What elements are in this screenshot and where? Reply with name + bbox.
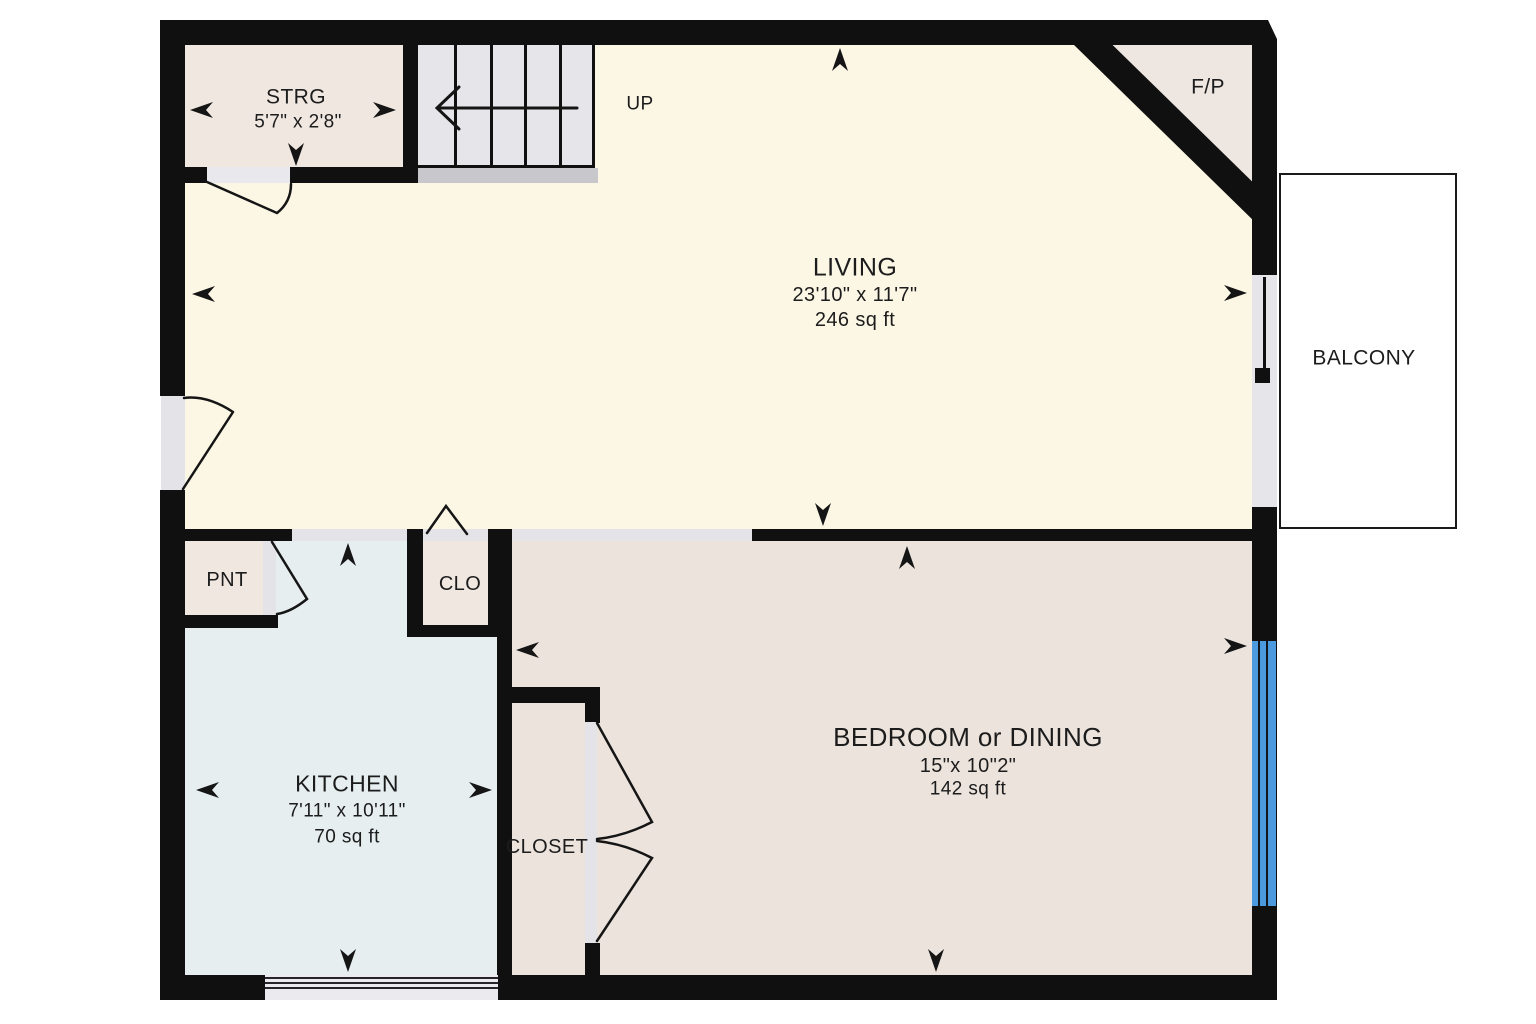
kitchen-area: 70 sq ft [314, 828, 380, 847]
window-mullion [1266, 641, 1268, 906]
closet-door-opening [585, 722, 597, 943]
wall-left [160, 490, 185, 1000]
bedroom-window [1252, 641, 1276, 906]
storage-door-opening [207, 167, 290, 183]
wall-top [160, 20, 1277, 45]
window-mullion [1258, 641, 1260, 906]
wall-left [160, 20, 185, 396]
stair-tread-divider [559, 45, 562, 165]
kitchen-label: KITCHEN [295, 773, 399, 796]
living-divider-wall [185, 529, 292, 541]
pantry-door-opening [263, 541, 276, 615]
fireplace-label: F/P [1191, 77, 1225, 98]
bedroom-label: BEDROOM or DINING [833, 724, 1103, 750]
balcony-label: BALCONY [1312, 348, 1415, 369]
kitchen-window [265, 975, 498, 1000]
storage-right-wall [403, 45, 418, 183]
pantry-label: PNT [206, 570, 247, 590]
living-divider-wall [407, 529, 423, 541]
closet-right-stub [585, 703, 600, 723]
clo-door-opening [423, 529, 488, 541]
balcony-sliding-door [1263, 277, 1266, 380]
stairs-landing-strip [418, 168, 598, 183]
hallway-opening [512, 529, 752, 541]
balcony-sliding-door-handle [1255, 368, 1270, 383]
closet-top-wall [497, 687, 600, 703]
stairs-direction-label: UP [626, 95, 653, 114]
kitchen-opening [292, 529, 407, 541]
clo-label: CLO [439, 574, 481, 594]
staircase [418, 45, 593, 165]
clo-right-wall [488, 541, 512, 637]
floor-plan: STRG 5'7" x 2'8" UP LIVING 23'10" x 11'7… [0, 0, 1536, 1024]
window-mullion [265, 987, 498, 989]
storage-dimensions: 5'7" x 2'8" [254, 113, 341, 132]
bedroom-area: 142 sq ft [930, 780, 1006, 799]
kitchen-dimensions: 7'11" x 10'11" [288, 802, 406, 821]
clo-left-wall [407, 541, 423, 637]
closet-right-stub [585, 943, 600, 975]
stairs-right-edge [592, 45, 595, 168]
living-label: LIVING [813, 256, 897, 281]
stair-tread-divider [490, 45, 493, 165]
stair-tread-divider [454, 45, 457, 165]
storage-label: STRG [266, 87, 326, 108]
living-divider-wall [752, 529, 1252, 541]
closet-label: CLOSET [506, 837, 588, 857]
window-mullion [265, 977, 498, 979]
entry-door-opening [161, 396, 185, 490]
room-bedroom [512, 541, 1252, 975]
stair-tread-divider [524, 45, 527, 165]
living-dimensions: 23'10" x 11'7" [793, 285, 918, 305]
clo-bottom-wall [407, 625, 512, 637]
window-mullion [265, 982, 498, 984]
living-area: 246 sq ft [815, 310, 895, 330]
pantry-bottom-wall [185, 615, 278, 628]
living-divider-wall [488, 529, 512, 541]
bedroom-dimensions: 15"x 10"2" [920, 756, 1016, 776]
